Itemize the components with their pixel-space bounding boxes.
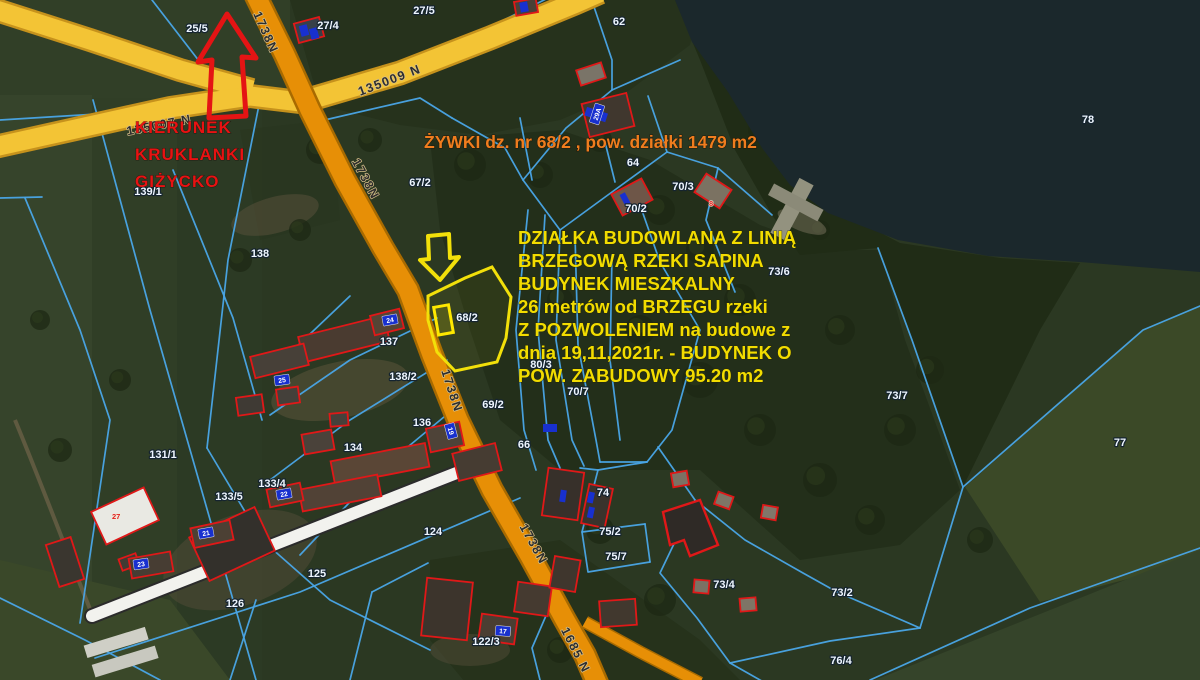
listing-note-line: 26 metrów od BRZEGU rzeki [518, 296, 768, 317]
parcel-label: 62 [613, 16, 625, 28]
parcel-label: 138 [251, 248, 269, 260]
map-canvas[interactable]: 135007 N135009 N1738N1738N1738N1738N1685… [0, 0, 1200, 680]
svg-text:21: 21 [202, 530, 211, 538]
listing-note-line: DZIAŁKA BUDOWLANA Z LINIĄ [518, 227, 796, 248]
parcel-label: 75/7 [605, 551, 626, 563]
svg-text:23: 23 [137, 561, 146, 569]
parcel-label: 133/5 [215, 491, 243, 503]
parcel-label: 64 [627, 157, 640, 169]
parcel-label: 70/2 [625, 203, 646, 215]
listing-note-line: dnia 19,11,2021r. - BUDYNEK O [518, 342, 792, 363]
direction-note-line: KIERUNEK [135, 118, 232, 137]
svg-text:25: 25 [278, 377, 287, 385]
parcel-label: 78 [1082, 114, 1094, 126]
parcel-label: 70/3 [672, 181, 693, 193]
parcel-label: 133/4 [258, 478, 286, 490]
parcel-label: 73/2 [831, 587, 852, 599]
parcel-label: 73/4 [713, 579, 735, 591]
parcel-label: 122/3 [472, 636, 500, 648]
parcel-label: 67/2 [409, 177, 430, 189]
address-plate: 17 [495, 625, 511, 636]
parcel-label: 74 [597, 487, 610, 499]
parcel-label: 134 [344, 442, 363, 454]
parcel-label: 73/6 [768, 266, 789, 278]
parcel-label: 75/2 [599, 526, 620, 538]
parcel-label: 73/7 [886, 390, 907, 402]
listing-note-line: BRZEGOWĄ RZEKI SAPINA [518, 250, 764, 271]
parcel-label: 70/7 [567, 386, 588, 398]
parcel-label: 66 [518, 439, 530, 451]
parcel-boundary-line [0, 197, 42, 198]
parcel-label: 124 [424, 526, 443, 538]
svg-text:17: 17 [499, 628, 507, 636]
direction-note-line: GIŻYCKO [135, 172, 219, 191]
parcel-label: 68/2 [456, 312, 477, 324]
building-tag: 8 [709, 199, 713, 208]
cadastral-map[interactable]: 135007 N135009 N1738N1738N1738N1738N1685… [0, 0, 1200, 680]
address-plate: 25 [274, 374, 290, 386]
parcel-label: 136 [413, 417, 431, 429]
listing-note-line: POW. ZABUDOWY 95.20 m2 [518, 365, 763, 386]
direction-note-line: KRUKLANKI [135, 145, 245, 164]
parcel-label: 25/5 [186, 23, 207, 35]
listing-note-line: Z POZWOLENIEM na budowe z [518, 319, 790, 340]
address-plate: 23 [133, 558, 149, 570]
parcel-label: 126 [226, 598, 244, 610]
parcel-label: 131/1 [149, 449, 177, 461]
parcel-info-note: ŻYWKI dz. nr 68/2 , pow. działki 1479 m2 [424, 132, 757, 152]
highlight-building-outline [434, 305, 454, 335]
parcel-label: 138/2 [389, 371, 417, 383]
parcel-label: 69/2 [482, 399, 503, 411]
parcel-label: 77 [1114, 437, 1126, 449]
parcel-label: 125 [308, 568, 326, 580]
parcel-label: 137 [380, 336, 398, 348]
svg-text:22: 22 [280, 491, 289, 499]
parcel-label: 76/4 [830, 655, 852, 667]
parcel-label: 27/5 [413, 5, 434, 17]
listing-note-line: BUDYNEK MIESZKALNY [518, 273, 736, 294]
svg-text:24: 24 [386, 317, 395, 325]
building-tag: 27 [112, 512, 120, 521]
parcel-label: 27/4 [317, 20, 339, 32]
